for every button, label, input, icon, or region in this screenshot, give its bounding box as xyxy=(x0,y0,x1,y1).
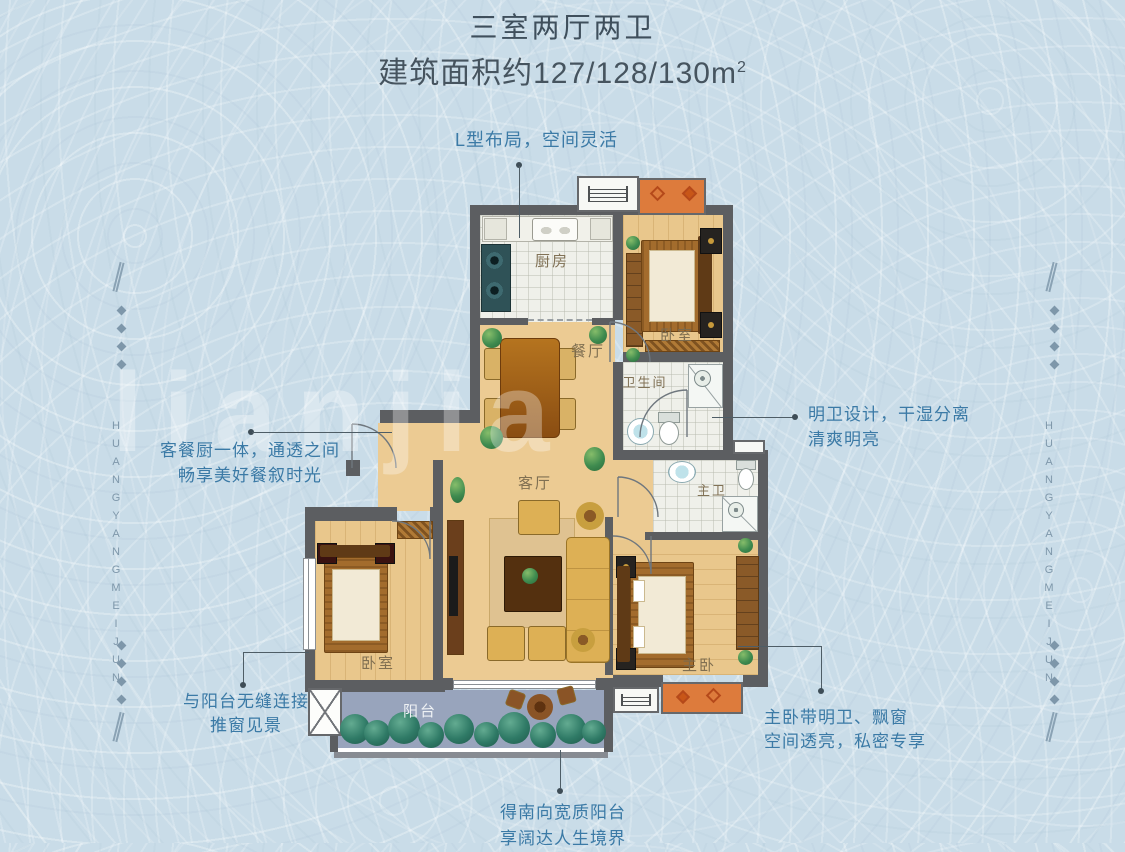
callout-balcony-link-dot xyxy=(240,682,246,688)
master-bath-door xyxy=(618,477,658,517)
bedroom-top-door xyxy=(610,322,650,362)
callout-open-kitchen-line1: 客餐厨一体，通透之间 xyxy=(140,438,360,463)
callout-south-balcony-dot xyxy=(557,788,563,794)
callout-south-balcony: 得南向宽质阳台 享阔达人生境界 xyxy=(465,800,661,852)
callout-bright-bath-dot xyxy=(792,414,798,420)
callout-master-dot xyxy=(818,688,824,694)
bathroom-door xyxy=(640,390,687,437)
callout-layout-line xyxy=(519,166,520,238)
callout-balcony-link-line-v xyxy=(243,652,244,684)
callout-bright-bath-line1: 明卫设计，干湿分离 xyxy=(808,402,970,427)
callout-layout: L型布局，空间灵活 xyxy=(455,128,618,153)
callout-bright-bath: 明卫设计，干湿分离 清爽明亮 xyxy=(808,402,970,452)
page-title: 三室两厅两卫 xyxy=(0,6,1125,46)
room-label-bedroom-top: 卧室 xyxy=(660,324,694,345)
callout-bright-bath-line2: 清爽明亮 xyxy=(808,427,970,452)
callout-balcony-link-line1: 与阳台无缝连接 xyxy=(148,690,344,714)
room-label-bedroom-left: 卧室 xyxy=(361,652,395,673)
callout-master-line-h xyxy=(738,646,822,647)
callout-south-balcony-line2: 享阔达人生境界 xyxy=(465,826,661,852)
callout-open-kitchen: 客餐厨一体，通透之间 畅享美好餐叙时光 xyxy=(140,438,360,488)
callout-master: 主卧带明卫、飘窗 空间透亮，私密专享 xyxy=(764,706,926,754)
room-label-living: 客厅 xyxy=(518,472,552,493)
room-label-kitchen: 厨房 xyxy=(535,250,569,271)
callout-balcony-link-line-h xyxy=(243,652,309,653)
callout-master-line1: 主卧带明卫、飘窗 xyxy=(764,706,926,730)
bedroom-left-door xyxy=(392,521,430,559)
callout-south-balcony-line xyxy=(560,750,561,788)
room-label-master-bath: 主卫 xyxy=(697,480,727,499)
page-subtitle-area: 建筑面积约127/128/130m2 xyxy=(0,48,1125,92)
area-superscript: 2 xyxy=(737,59,747,76)
callout-master-line-v xyxy=(821,646,822,690)
callout-open-kitchen-line xyxy=(252,432,392,433)
callout-balcony-link: 与阳台无缝连接 推窗见景 xyxy=(148,690,344,738)
callout-balcony-link-line2: 推窗见景 xyxy=(148,714,344,738)
room-label-bathroom: 卫生间 xyxy=(622,372,667,391)
callout-open-kitchen-line2: 畅享美好餐叙时光 xyxy=(140,463,360,488)
room-label-master-bedroom: 主卧 xyxy=(682,654,716,675)
callout-south-balcony-line1: 得南向宽质阳台 xyxy=(465,800,661,826)
room-label-balcony: 阳台 xyxy=(403,700,437,721)
room-label-dining: 餐厅 xyxy=(571,340,605,361)
area-text: 建筑面积约127/128/130m xyxy=(378,57,737,90)
callout-master-line2: 空间透亮，私密专享 xyxy=(764,730,926,754)
master-bedroom-door xyxy=(613,536,651,574)
callout-bright-bath-line xyxy=(712,417,794,418)
